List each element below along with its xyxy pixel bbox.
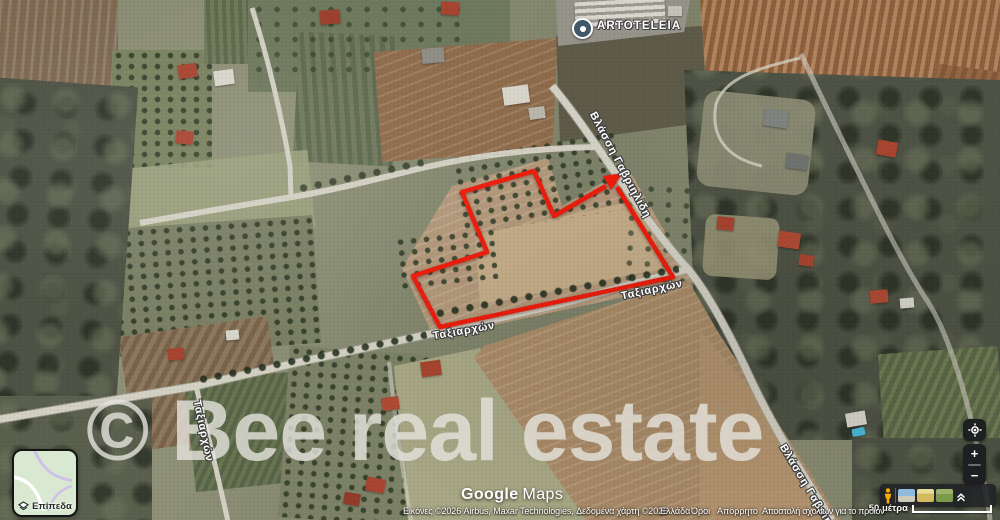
logo-word-maps: Maps [523,486,564,503]
footer-link-privacy[interactable]: Απόρρητο [717,506,758,516]
field-photo-thumbnail[interactable] [917,489,934,502]
pegman-icon[interactable] [883,488,893,504]
zoom-in-button[interactable]: + [963,444,986,464]
footer-link-feedback[interactable]: Αποστολή σχολίων για το προϊόν [762,506,884,516]
footer-link-terms[interactable]: Όροι [691,506,710,516]
zoom-out-button[interactable]: − [963,466,986,486]
my-location-button[interactable] [963,419,986,441]
layers-button[interactable]: Επίπεδα [12,449,78,517]
scale-bar [912,505,992,513]
grass-photo-thumbnail[interactable] [936,489,953,502]
bar-divider [895,488,896,503]
streetview-photo-thumbnail[interactable] [898,489,915,502]
zoom-control: + − [963,444,986,485]
google-maps-logo[interactable]: GoogleMaps [461,486,563,504]
my-location-icon [968,423,982,437]
chevron-double-up-icon[interactable] [955,490,967,502]
footer-link-region[interactable]: Ελλάδα [660,506,690,516]
layers-label: Επίπεδα [32,501,72,512]
poi-label[interactable]: ARTOTELEIA [597,20,681,32]
poi-circle-icon[interactable] [572,18,593,39]
grain-overlay [0,0,1000,520]
map-canvas[interactable]: © Bee real estate Βλάσση Γαβριηλίδη Ταξι… [0,0,1000,520]
map-attribution: Εικόνες ©2026 Airbus, Maxar Technologies… [403,506,668,516]
logo-word-google: Google [461,486,519,503]
layers-icon [18,501,29,512]
